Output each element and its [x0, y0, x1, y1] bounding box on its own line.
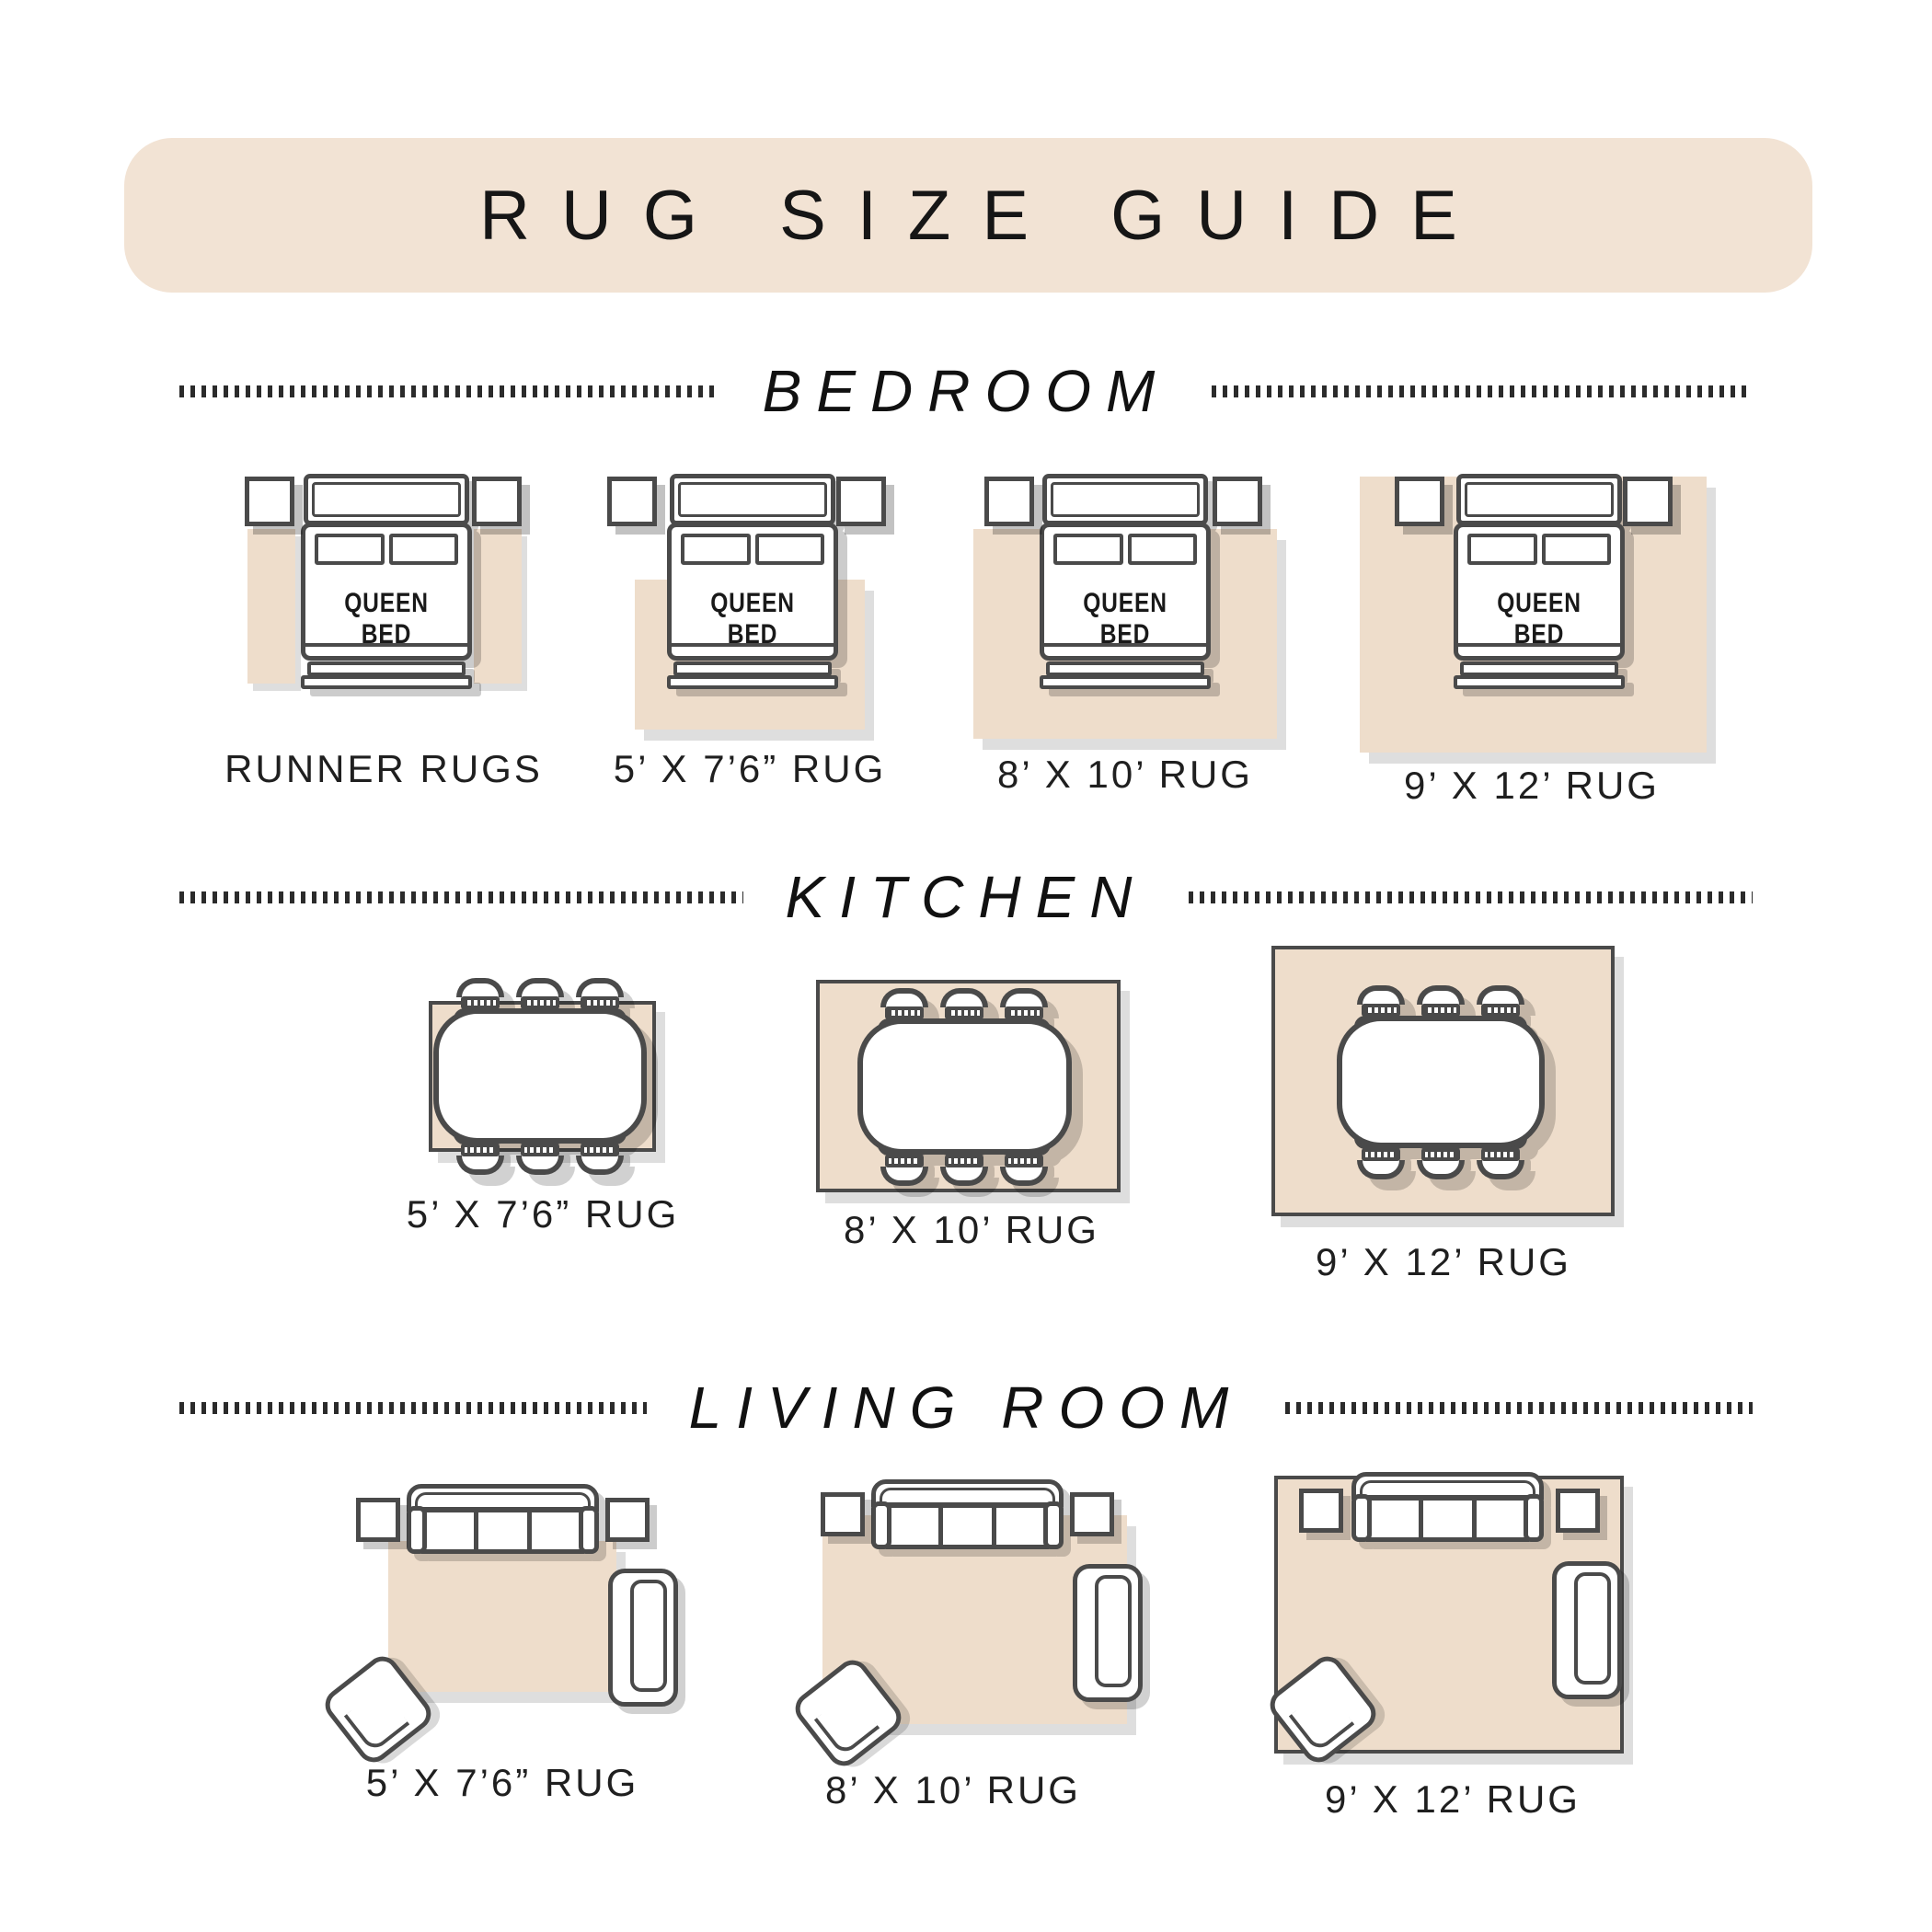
chaise-chair	[1552, 1561, 1622, 1699]
pillows	[1467, 534, 1611, 565]
chair-back	[1357, 985, 1405, 1005]
section-header-living-room: LIVING ROOM	[179, 1371, 1753, 1444]
pillow	[681, 534, 751, 565]
sofa-arm	[579, 1506, 599, 1554]
sofa-arm	[407, 1506, 427, 1554]
side-table	[1070, 1492, 1114, 1536]
page-title: RUG SIZE GUIDE	[448, 176, 1489, 256]
queen-bed: QUEEN BED	[1454, 474, 1625, 689]
chair-back	[1477, 1160, 1524, 1179]
section-label-bedroom: BEDROOM	[763, 357, 1170, 425]
side-table	[821, 1492, 865, 1536]
sofa	[871, 1479, 1064, 1549]
bed-body: QUEEN BED	[667, 523, 838, 661]
title-banner: RUG SIZE GUIDE	[124, 138, 1812, 293]
dining-table	[1337, 1016, 1545, 1148]
bed-blanket-fold	[673, 661, 832, 676]
bed-headboard	[1042, 474, 1208, 525]
dining-table	[857, 1018, 1072, 1155]
pillow	[315, 534, 385, 565]
nightstand	[607, 477, 657, 526]
chair-cushion	[1481, 1004, 1520, 1017]
chair-back	[940, 1167, 988, 1186]
queen-bed: QUEEN BED	[301, 474, 472, 689]
sofa-arm	[1524, 1494, 1544, 1542]
bed-blanket-fold	[1046, 661, 1204, 676]
section-header-bedroom: BEDROOM	[179, 354, 1753, 428]
bed-body: QUEEN BED	[1040, 523, 1211, 661]
sofa-cushion	[938, 1503, 995, 1549]
sofa-cushion	[886, 1503, 943, 1549]
sofa	[407, 1484, 599, 1554]
sofa-cushions	[1366, 1496, 1529, 1542]
bed-blanket-end	[1454, 675, 1625, 689]
nightstand	[1623, 477, 1673, 526]
runner-rug-right	[474, 529, 522, 684]
pillow	[1467, 534, 1537, 565]
chair-back	[516, 978, 564, 997]
chair-cushion	[945, 1006, 983, 1019]
chair-cushion	[885, 1155, 924, 1167]
caption-8x10-kitchen: 8’ X 10’ RUG	[844, 1208, 1099, 1252]
pillows	[1053, 534, 1197, 565]
runner-rug-left	[247, 529, 295, 684]
chair-back	[1417, 1160, 1465, 1179]
pillow	[1128, 534, 1198, 565]
caption-5x76-bedroom: 5’ X 7’6” RUG	[614, 747, 887, 791]
nightstand	[984, 477, 1034, 526]
bed-headboard	[1456, 474, 1622, 525]
dotted-divider	[179, 891, 743, 903]
chair-cushion	[1481, 1148, 1520, 1161]
nightstand	[1395, 477, 1444, 526]
pillow	[1053, 534, 1123, 565]
dining-table	[433, 1008, 647, 1144]
caption-9x12-living: 9’ X 12’ RUG	[1325, 1777, 1581, 1822]
caption-5x76-kitchen: 5’ X 7’6” RUG	[407, 1192, 680, 1236]
chair-cushion	[1421, 1004, 1460, 1017]
dotted-divider	[1212, 385, 1753, 397]
caption-5x76-living: 5’ X 7’6” RUG	[366, 1761, 639, 1805]
chair-back	[1000, 988, 1048, 1007]
bed-blanket-end	[301, 675, 472, 689]
chaise-chair	[1073, 1564, 1143, 1702]
chair-back	[1357, 1160, 1405, 1179]
caption-9x12-kitchen: 9’ X 12’ RUG	[1316, 1240, 1571, 1284]
chair-back	[1000, 1167, 1048, 1186]
bed-label: QUEEN BED	[320, 588, 453, 650]
chair-cushion	[1362, 1148, 1400, 1161]
dotted-divider	[179, 1402, 647, 1414]
chair-cushion	[885, 1006, 924, 1019]
side-table	[605, 1498, 650, 1542]
chair-cushion	[1421, 1148, 1460, 1161]
bed-blanket-end	[667, 675, 838, 689]
caption-8x10-living: 8’ X 10’ RUG	[825, 1768, 1081, 1812]
chair-cushion	[1005, 1006, 1043, 1019]
bed-body: QUEEN BED	[301, 523, 472, 661]
chair-cushion	[521, 996, 559, 1009]
caption-8x10-bedroom: 8’ X 10’ RUG	[997, 753, 1253, 797]
chair-back	[940, 988, 988, 1007]
pillow	[1542, 534, 1612, 565]
chair-cushion	[1362, 1004, 1400, 1017]
chair-cushion	[461, 996, 500, 1009]
caption-9x12-bedroom: 9’ X 12’ RUG	[1404, 764, 1660, 808]
side-table	[1556, 1489, 1600, 1533]
sofa-cushions	[421, 1508, 584, 1554]
chair-back	[576, 1156, 624, 1175]
bed-label: QUEEN BED	[686, 588, 819, 650]
chair-cushion	[461, 1144, 500, 1156]
queen-bed: QUEEN BED	[667, 474, 838, 689]
sofa-cushion	[1419, 1496, 1476, 1542]
bed-headboard	[670, 474, 835, 525]
section-header-kitchen: KITCHEN	[179, 860, 1753, 934]
sofa-cushion	[1472, 1496, 1529, 1542]
sofa-cushion	[992, 1503, 1049, 1549]
bed-label: QUEEN BED	[1059, 588, 1191, 650]
nightstand	[1213, 477, 1262, 526]
chair-back	[1417, 985, 1465, 1005]
sofa-cushion	[474, 1508, 531, 1554]
caption-runner-rugs: RUNNER RUGS	[224, 747, 543, 791]
chair-back	[516, 1156, 564, 1175]
pillow	[755, 534, 825, 565]
chaise-chair	[608, 1569, 678, 1707]
rug-5x76-living	[388, 1541, 616, 1692]
nightstand	[245, 477, 294, 526]
chair-back	[880, 1167, 928, 1186]
sofa-arm	[1351, 1494, 1372, 1542]
pillows	[315, 534, 458, 565]
chair-back	[576, 978, 624, 997]
dotted-divider	[1285, 1402, 1753, 1414]
section-label-kitchen: KITCHEN	[786, 863, 1147, 931]
sofa-arm	[871, 1501, 891, 1549]
dotted-divider	[1189, 891, 1753, 903]
sofa-cushions	[886, 1503, 1049, 1549]
chair-cushion	[1005, 1155, 1043, 1167]
bed-blanket-end	[1040, 675, 1211, 689]
chair-cushion	[581, 1144, 619, 1156]
sofa	[1351, 1472, 1544, 1542]
pillow	[389, 534, 459, 565]
chair-cushion	[521, 1144, 559, 1156]
chair-back	[456, 978, 504, 997]
bed-body: QUEEN BED	[1454, 523, 1625, 661]
pillows	[681, 534, 824, 565]
section-label-living-room: LIVING ROOM	[689, 1374, 1244, 1442]
chair-back	[1477, 985, 1524, 1005]
nightstand	[836, 477, 886, 526]
dotted-divider	[179, 385, 720, 397]
sofa-cushion	[421, 1508, 478, 1554]
chair-cushion	[945, 1155, 983, 1167]
sofa-arm	[1043, 1501, 1064, 1549]
chair-back	[456, 1156, 504, 1175]
side-table	[1299, 1489, 1343, 1533]
bed-label: QUEEN BED	[1473, 588, 1605, 650]
sofa-cushion	[1366, 1496, 1423, 1542]
rug-size-guide-infographic: RUG SIZE GUIDE BEDROOM QUEEN BED RUNNER …	[0, 0, 1932, 1932]
sofa-cushion	[527, 1508, 584, 1554]
side-table	[356, 1498, 400, 1542]
queen-bed: QUEEN BED	[1040, 474, 1211, 689]
bed-blanket-fold	[1460, 661, 1618, 676]
bed-blanket-fold	[307, 661, 466, 676]
bed-headboard	[304, 474, 469, 525]
nightstand	[472, 477, 522, 526]
chair-back	[880, 988, 928, 1007]
chair-cushion	[581, 996, 619, 1009]
